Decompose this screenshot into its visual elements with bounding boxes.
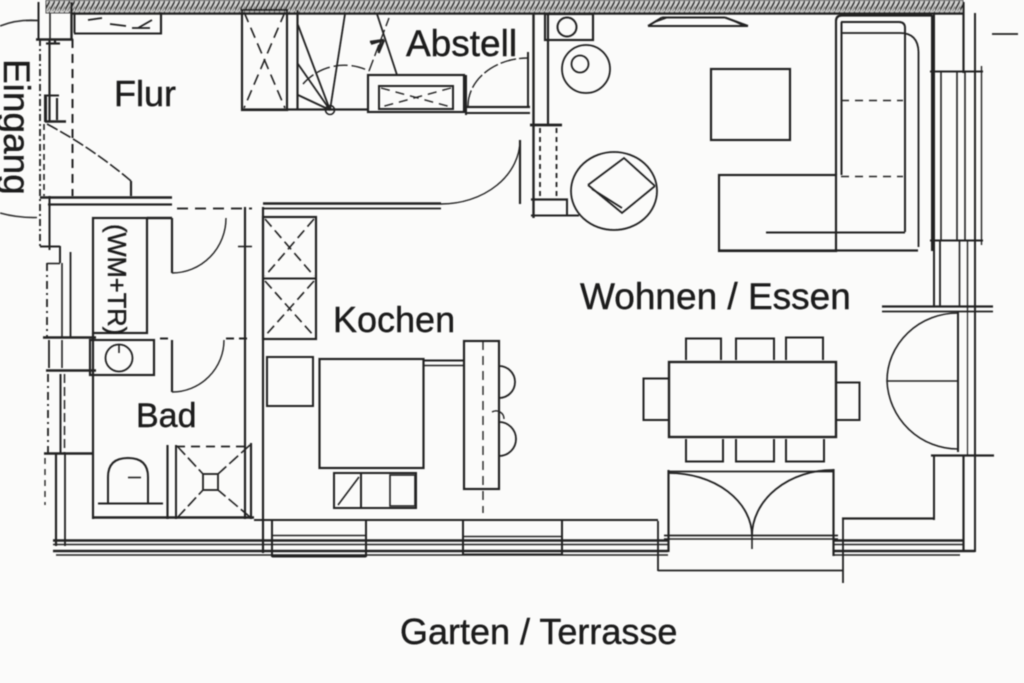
svg-text:Abstell: Abstell [406,23,517,64]
svg-text:Bad: Bad [136,397,197,435]
svg-text:Kochen: Kochen [333,299,455,340]
svg-text:(WM+TR): (WM+TR) [102,224,130,335]
svg-text:Eingang: Eingang [0,59,37,195]
svg-text:Wohnen / Essen: Wohnen / Essen [580,276,851,317]
svg-text:Flur: Flur [114,73,176,114]
svg-text:Garten / Terrasse: Garten / Terrasse [400,611,677,652]
